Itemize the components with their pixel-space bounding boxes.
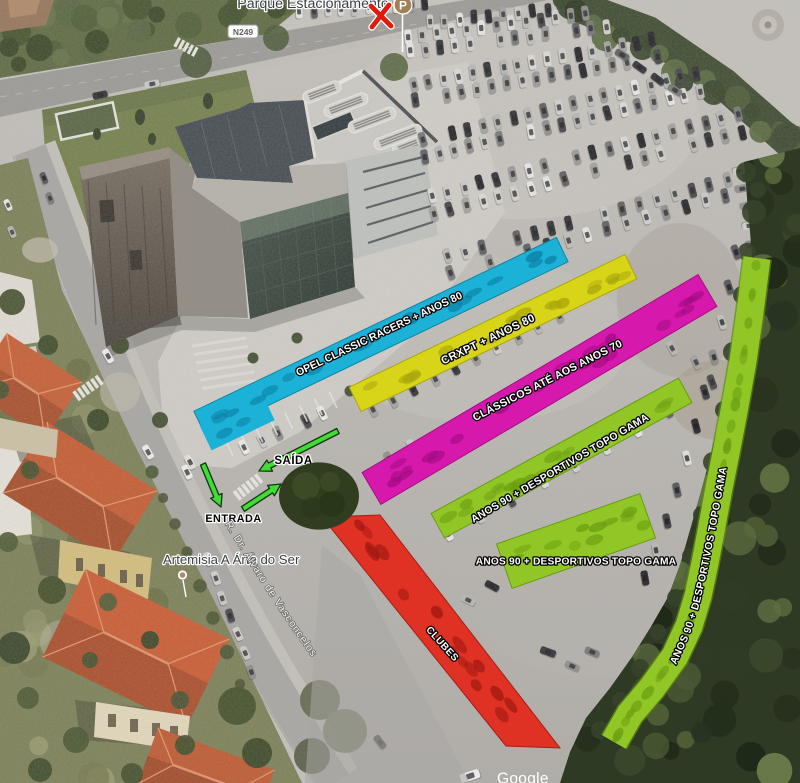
svg-text:Artemisia A Árte do Ser: Artemisia A Árte do Ser — [163, 552, 300, 567]
svg-text:P: P — [399, 0, 407, 13]
svg-text:ANOS 90 + DESPORTIVOS TOPO GAM: ANOS 90 + DESPORTIVOS TOPO GAMA — [476, 557, 677, 568]
svg-text:Parque Estacionamento: Parque Estacionamento — [237, 0, 389, 12]
svg-text:N249: N249 — [233, 27, 254, 37]
svg-text:Google: Google — [497, 771, 549, 783]
